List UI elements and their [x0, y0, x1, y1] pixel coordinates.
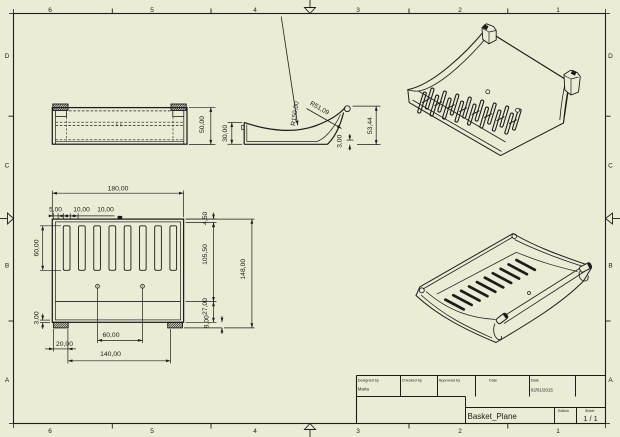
svg-text:Approved by: Approved by [439, 378, 460, 382]
svg-text:60,00: 60,00 [33, 239, 40, 256]
svg-text:2: 2 [458, 428, 462, 435]
svg-text:Sheet: Sheet [585, 409, 594, 413]
svg-text:A: A [608, 377, 613, 384]
svg-text:1 / 1: 1 / 1 [583, 414, 597, 423]
svg-text:Checked by: Checked by [402, 378, 422, 382]
svg-text:180,00: 180,00 [108, 186, 129, 193]
svg-text:Date: Date [531, 378, 539, 382]
svg-text:6: 6 [48, 7, 52, 14]
svg-text:D: D [5, 53, 10, 60]
svg-text:Maria: Maria [358, 387, 370, 392]
svg-text:3: 3 [356, 428, 360, 435]
svg-text:Basket_Plane: Basket_Plane [468, 412, 518, 421]
svg-text:50,00: 50,00 [199, 116, 206, 133]
svg-text:2: 2 [458, 7, 462, 14]
svg-text:27,00: 27,00 [202, 298, 209, 315]
svg-text:6: 6 [48, 428, 52, 435]
svg-text:3: 3 [356, 7, 360, 14]
svg-text:Edition: Edition [558, 409, 569, 413]
svg-text:A: A [5, 377, 10, 384]
svg-text:C: C [608, 163, 613, 170]
svg-text:B: B [608, 263, 612, 270]
svg-text:5: 5 [150, 7, 154, 14]
svg-text:10,00: 10,00 [97, 207, 114, 214]
svg-text:30,00: 30,00 [222, 125, 229, 142]
svg-text:1: 1 [556, 7, 560, 14]
svg-text:02/01/2015: 02/01/2015 [531, 387, 554, 392]
svg-text:10,00: 10,00 [73, 207, 90, 214]
svg-text:148,00: 148,00 [240, 259, 247, 280]
svg-text:60,00: 60,00 [102, 332, 119, 339]
svg-text:105,50: 105,50 [202, 244, 209, 265]
svg-text:B: B [5, 263, 9, 270]
svg-text:Designed by: Designed by [358, 378, 379, 382]
svg-text:C: C [5, 163, 10, 170]
svg-text:3,00: 3,00 [337, 134, 344, 147]
svg-text:53,44: 53,44 [367, 117, 374, 134]
svg-text:140,00: 140,00 [100, 351, 121, 358]
svg-text:1: 1 [556, 428, 560, 435]
svg-text:D: D [608, 53, 613, 60]
svg-text:5: 5 [150, 428, 154, 435]
svg-text:3,00: 3,00 [33, 311, 40, 324]
svg-text:4: 4 [253, 428, 257, 435]
svg-text:20,00: 20,00 [56, 341, 73, 348]
svg-text:4: 4 [253, 7, 257, 14]
svg-text:4,50: 4,50 [202, 211, 209, 224]
svg-text:8,00: 8,00 [203, 315, 210, 328]
svg-text:Date: Date [489, 378, 497, 382]
svg-text:5,00: 5,00 [49, 207, 62, 214]
